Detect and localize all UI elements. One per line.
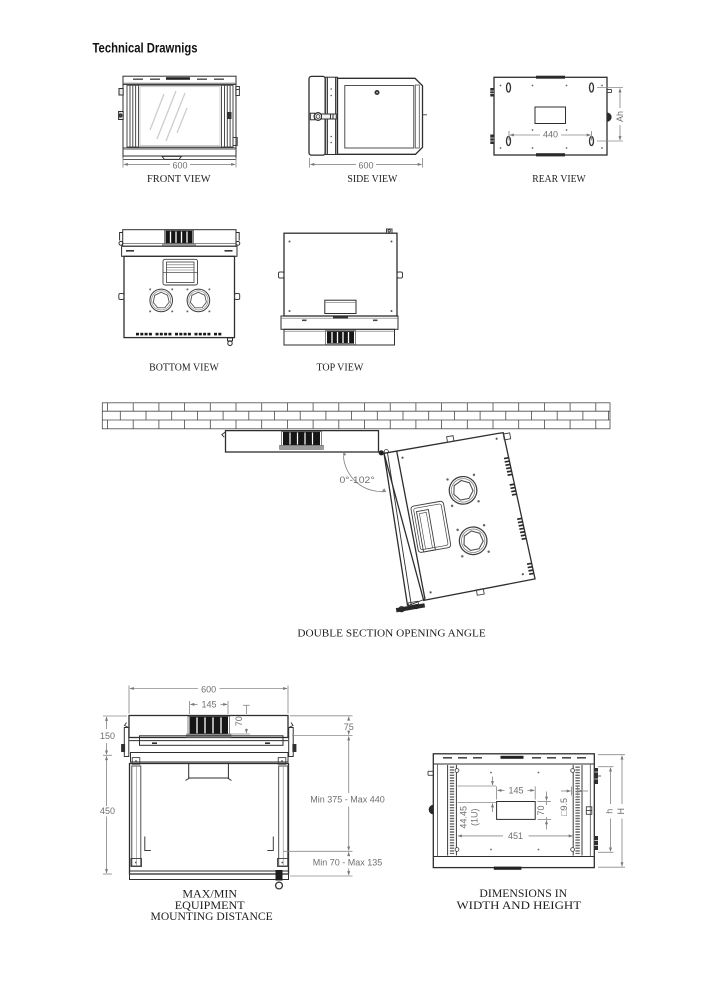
svg-text:BOTTOM VIEW: BOTTOM VIEW xyxy=(149,361,219,373)
svg-text:□9.5: □9.5 xyxy=(559,798,569,816)
svg-text:600: 600 xyxy=(201,684,216,694)
svg-text:MOUNTING DISTANCE: MOUNTING DISTANCE xyxy=(151,911,273,923)
svg-text:h: h xyxy=(604,809,614,814)
svg-text:WIDTH AND HEIGHT: WIDTH AND HEIGHT xyxy=(457,900,582,912)
svg-text:145: 145 xyxy=(508,785,523,795)
svg-text:REAR VIEW: REAR VIEW xyxy=(532,173,586,185)
svg-text:600: 600 xyxy=(172,160,187,170)
svg-text:EQUIPMENT: EQUIPMENT xyxy=(175,900,245,912)
svg-text:75: 75 xyxy=(344,722,354,732)
svg-text:Ah: Ah xyxy=(615,111,625,122)
svg-text:451: 451 xyxy=(508,831,523,841)
svg-text:H: H xyxy=(616,808,626,815)
svg-text:450: 450 xyxy=(100,806,115,816)
svg-text:70: 70 xyxy=(536,805,546,815)
svg-text:DOUBLE SECTION OPENING ANGLE: DOUBLE SECTION OPENING ANGLE xyxy=(297,628,486,640)
svg-text:TOP VIEW: TOP VIEW xyxy=(316,361,363,373)
svg-text:600: 600 xyxy=(358,160,373,170)
svg-text:DIMENSIONS IN: DIMENSIONS IN xyxy=(479,888,567,900)
svg-text:Technical Drawnigs: Technical Drawnigs xyxy=(93,41,198,56)
svg-text:MAX/MIN: MAX/MIN xyxy=(182,888,237,900)
svg-text:Min 375 - Max 440: Min 375 - Max 440 xyxy=(310,795,385,805)
svg-text:Min 70 - Max 135: Min 70 - Max 135 xyxy=(313,857,383,867)
svg-text:FRONT VIEW: FRONT VIEW xyxy=(147,173,211,185)
svg-text:440: 440 xyxy=(543,130,558,140)
svg-text:SIDE VIEW: SIDE VIEW xyxy=(347,173,398,185)
svg-text:145: 145 xyxy=(201,699,216,709)
svg-text:0°-102°: 0°-102° xyxy=(340,475,375,485)
svg-text:44.45: 44.45 xyxy=(459,806,469,829)
svg-text:(1U): (1U) xyxy=(470,809,480,827)
svg-text:70: 70 xyxy=(234,716,244,726)
svg-text:150: 150 xyxy=(100,731,115,741)
